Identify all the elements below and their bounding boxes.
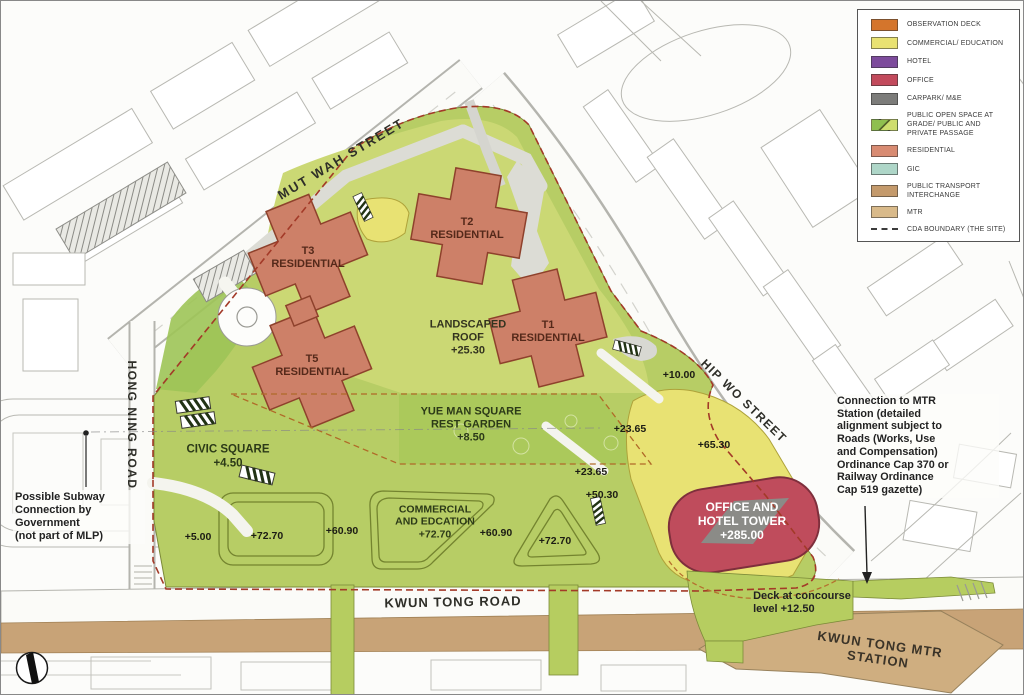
legend-swatch-hotel	[871, 56, 898, 68]
label-tower-t3: T3 RESIDENTIAL	[271, 245, 344, 271]
level-23-65-b: +23.65	[575, 466, 607, 478]
level-10-00: +10.00	[663, 369, 695, 381]
legend-swatch-cda-boundary	[871, 228, 898, 230]
level-72-70-a: +72.70	[251, 530, 283, 542]
legend-item-mtr: MTR	[871, 206, 1015, 218]
legend-label: COMMERCIAL/ EDUCATION	[907, 39, 1003, 48]
legend-item-gic: GIC	[871, 163, 1015, 175]
level-23-65-a: +23.65	[614, 423, 646, 435]
legend-label: HOTEL	[907, 57, 931, 66]
level-60-90-b: +60.90	[480, 527, 512, 539]
street-label-kwun-tong-road: KWUN TONG ROAD	[384, 593, 522, 611]
label-civic-square: CIVIC SQUARE +4.50	[186, 443, 269, 470]
legend-swatch-carpark	[871, 93, 898, 105]
legend-label: OFFICE	[907, 76, 934, 85]
legend-swatch-public-transport	[871, 185, 898, 197]
annotation-mtr-connection: Connection to MTR Station (detailed alig…	[835, 394, 999, 498]
legend-item-open-space: PUBLIC OPEN SPACE AT GRADE/ PUBLIC AND P…	[871, 111, 1015, 138]
legend-swatch-residential	[871, 145, 898, 157]
street-label-hong-ning: HONG NING ROAD	[125, 361, 139, 490]
legend-item-public-transport: PUBLIC TRANSPORT INTERCHANGE	[871, 182, 1015, 200]
legend-item-carpark: CARPARK/ M&E	[871, 93, 1015, 105]
legend-label: CARPARK/ M&E	[907, 94, 962, 103]
label-tower-t2: T2 RESIDENTIAL	[430, 216, 503, 242]
legend-label: GIC	[907, 165, 920, 174]
legend-label: MTR	[907, 208, 923, 217]
label-tower-t5: T5 RESIDENTIAL	[275, 353, 348, 379]
annotation-deck: Deck at concourse level +12.50	[753, 590, 851, 616]
site-plan: MUT WAH STREET HONG NING ROAD HIP WO STR…	[0, 0, 1024, 695]
legend-label: CDA BOUNDARY (THE SITE)	[907, 225, 1005, 234]
label-tower-t1: T1 RESIDENTIAL	[511, 319, 584, 345]
legend-item-hotel: HOTEL	[871, 56, 1015, 68]
label-office-hotel-tower: OFFICE AND HOTEL TOWER +285.00	[698, 500, 786, 542]
legend-label: OBSERVATION DECK	[907, 20, 981, 29]
legend-swatch-observation-deck	[871, 19, 898, 31]
legend: OBSERVATION DECK COMMERCIAL/ EDUCATION H…	[857, 9, 1020, 242]
legend-item-cda-boundary: CDA BOUNDARY (THE SITE)	[871, 225, 1015, 234]
annotation-subway: Possible Subway Connection by Government…	[13, 490, 145, 544]
level-5-00: +5.00	[185, 531, 212, 543]
legend-label: PUBLIC OPEN SPACE AT GRADE/ PUBLIC AND P…	[907, 111, 1012, 138]
legend-label: RESIDENTIAL	[907, 146, 955, 155]
label-yue-man-square: YUE MAN SQUARE REST GARDEN +8.50	[421, 406, 522, 445]
north-compass-icon	[17, 652, 48, 684]
legend-item-residential: RESIDENTIAL	[871, 145, 1015, 157]
level-72-70-b: +72.70	[539, 535, 571, 547]
level-65-30: +65.30	[698, 439, 730, 451]
legend-label: PUBLIC TRANSPORT INTERCHANGE	[907, 182, 1012, 200]
level-50-30: +50.30	[586, 489, 618, 501]
legend-item-commercial-education: COMMERCIAL/ EDUCATION	[871, 37, 1015, 49]
legend-swatch-gic	[871, 163, 898, 175]
label-landscaped-roof: LANDSCAPED ROOF +25.30	[430, 319, 506, 358]
level-60-90-a: +60.90	[326, 525, 358, 537]
legend-swatch-open-space	[871, 119, 898, 131]
label-commercial-education: COMMERCIAL AND EDCATION +72.70	[395, 503, 475, 540]
legend-item-observation-deck: OBSERVATION DECK	[871, 19, 1015, 31]
legend-swatch-office	[871, 74, 898, 86]
legend-swatch-mtr	[871, 206, 898, 218]
legend-item-office: OFFICE	[871, 74, 1015, 86]
legend-swatch-commercial-education	[871, 37, 898, 49]
